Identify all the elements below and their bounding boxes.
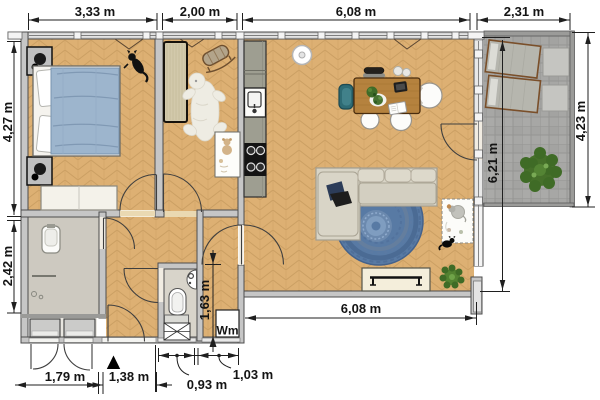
svg-text:4,23 m: 4,23 m xyxy=(573,101,588,141)
svg-text:1,03 m: 1,03 m xyxy=(233,367,273,382)
svg-text:Wm: Wm xyxy=(217,324,239,338)
svg-text:2,00 m: 2,00 m xyxy=(180,4,220,19)
svg-text:6,21 m: 6,21 m xyxy=(485,143,500,183)
svg-text:6,08 m: 6,08 m xyxy=(336,4,376,19)
svg-text:1,79 m: 1,79 m xyxy=(45,369,85,384)
svg-text:3,33 m: 3,33 m xyxy=(75,4,115,19)
svg-text:2,31 m: 2,31 m xyxy=(504,4,544,19)
svg-text:1,63 m: 1,63 m xyxy=(197,280,212,320)
svg-text:0,93 m: 0,93 m xyxy=(187,377,227,392)
svg-text:2,42 m: 2,42 m xyxy=(0,246,15,286)
svg-text:1,38 m: 1,38 m xyxy=(109,369,149,384)
svg-text:6,08 m: 6,08 m xyxy=(341,301,381,316)
svg-text:4,27 m: 4,27 m xyxy=(0,102,15,142)
